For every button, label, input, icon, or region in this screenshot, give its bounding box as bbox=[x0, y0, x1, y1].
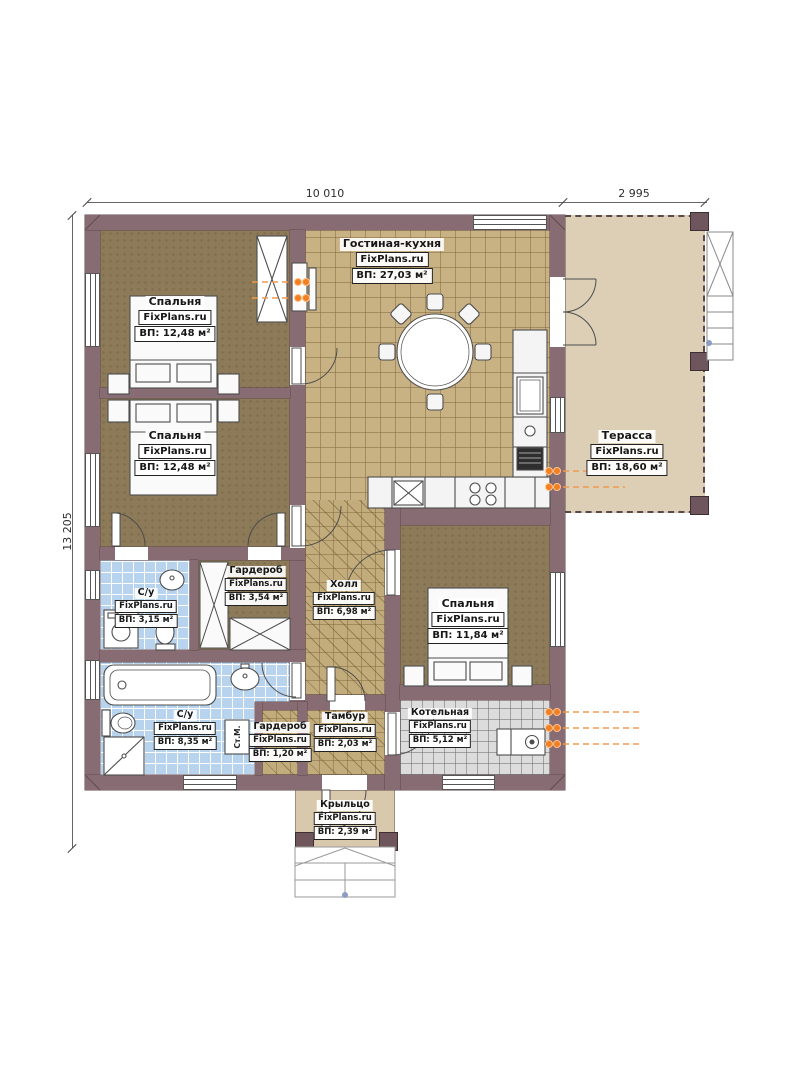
terrace-post bbox=[690, 496, 709, 515]
room-label-porch: Крыльцо FixPlans.ru ВП: 2,39 м² bbox=[314, 800, 377, 840]
window bbox=[473, 215, 547, 230]
door-opening bbox=[550, 277, 565, 347]
watermark: FixPlans.ru bbox=[314, 724, 376, 737]
room-area: ВП: 5,12 м² bbox=[409, 734, 472, 747]
porch-post bbox=[295, 832, 314, 851]
window bbox=[550, 397, 565, 433]
door-opening bbox=[290, 505, 305, 548]
terrace-post bbox=[690, 212, 709, 231]
room-name: Холл bbox=[327, 580, 361, 591]
wall bbox=[100, 650, 305, 662]
window bbox=[442, 775, 495, 790]
room-label-boiler: Котельная FixPlans.ru ВП: 5,12 м² bbox=[408, 708, 472, 748]
wall bbox=[190, 560, 198, 650]
watermark: FixPlans.ru bbox=[355, 252, 428, 268]
room-name: Гардероб bbox=[226, 566, 285, 577]
room-label-bath-small: С/у FixPlans.ru ВП: 3,15 м² bbox=[115, 588, 178, 628]
door-opening bbox=[385, 712, 400, 755]
porch-post bbox=[379, 832, 398, 851]
door-opening bbox=[115, 547, 148, 560]
room-label-bedroom2: Спальня FixPlans.ru ВП: 12,48 м² bbox=[134, 430, 215, 476]
room-area: ВП: 3,15 м² bbox=[115, 614, 178, 627]
window bbox=[85, 273, 100, 347]
window bbox=[183, 775, 237, 790]
watermark: FixPlans.ru bbox=[249, 734, 311, 747]
wall bbox=[100, 388, 290, 398]
room-name: Крыльцо bbox=[317, 800, 373, 811]
door-opening bbox=[290, 662, 305, 700]
room-label-terrace: Терасса FixPlans.ru ВП: 18,60 м² bbox=[586, 430, 667, 476]
room-label-bedroom3: Спальня FixPlans.ru ВП: 11,84 м² bbox=[427, 598, 508, 644]
room-label-bedroom1: Спальня FixPlans.ru ВП: 12,48 м² bbox=[134, 296, 215, 342]
room-area: ВП: 2,03 м² bbox=[314, 738, 377, 751]
watermark: FixPlans.ru bbox=[115, 600, 177, 613]
door-opening bbox=[290, 347, 305, 385]
room-area: ВП: 11,84 м² bbox=[427, 628, 508, 644]
room-area: ВП: 3,54 м² bbox=[225, 592, 288, 605]
watermark: FixPlans.ru bbox=[138, 444, 211, 460]
room-label-tambour: Тамбур FixPlans.ru ВП: 2,03 м² bbox=[314, 712, 377, 752]
watermark: FixPlans.ru bbox=[409, 720, 471, 733]
room-name: С/у bbox=[135, 588, 158, 599]
watermark: FixPlans.ru bbox=[314, 812, 376, 825]
terrace-post bbox=[690, 352, 709, 371]
room-name: Тамбур bbox=[322, 712, 368, 723]
room-name: Спальня bbox=[146, 296, 205, 309]
room-area: ВП: 1,20 м² bbox=[249, 748, 312, 761]
terrace-stairs-icon bbox=[706, 232, 733, 360]
room-area: ВП: 18,60 м² bbox=[586, 460, 667, 476]
wall bbox=[290, 230, 305, 702]
dimension-line-top bbox=[87, 202, 707, 203]
room-label-wardrobe-big: Гардероб FixPlans.ru ВП: 3,54 м² bbox=[225, 566, 288, 606]
room-area: ВП: 8,35 м² bbox=[154, 736, 217, 749]
room-label-wardrobe-small: Гардероб FixPlans.ru ВП: 1,20 м² bbox=[249, 722, 312, 762]
room-area: ВП: 27,03 м² bbox=[351, 268, 432, 284]
door-opening bbox=[322, 775, 367, 790]
room-area: ВП: 6,98 м² bbox=[313, 606, 376, 619]
dimension-side-total: 13 205 bbox=[61, 512, 74, 551]
door-opening bbox=[330, 695, 365, 710]
door-opening bbox=[248, 547, 281, 560]
room-area: ВП: 2,39 м² bbox=[314, 826, 377, 839]
room-name: С/у bbox=[174, 710, 197, 721]
room-name: Спальня bbox=[146, 430, 205, 443]
room-name: Гардероб bbox=[250, 722, 309, 733]
room-name: Котельная bbox=[408, 708, 472, 719]
watermark: FixPlans.ru bbox=[225, 578, 287, 591]
watermark: FixPlans.ru bbox=[154, 722, 216, 735]
room-area: ВП: 12,48 м² bbox=[134, 460, 215, 476]
watermark: FixPlans.ru bbox=[313, 592, 375, 605]
watermark: FixPlans.ru bbox=[590, 444, 663, 460]
room-name: Гостиная-кухня bbox=[340, 238, 444, 251]
room-label-hall: Холл FixPlans.ru ВП: 6,98 м² bbox=[313, 580, 376, 620]
room-name: Спальня bbox=[439, 598, 498, 611]
wall bbox=[385, 508, 550, 525]
window bbox=[85, 660, 100, 700]
floor-plan-canvas: 10 010 2 995 13 205 bbox=[0, 0, 792, 1080]
window bbox=[550, 572, 565, 647]
room-name: Терасса bbox=[599, 430, 656, 443]
dimension-top-terrace: 2 995 bbox=[618, 187, 650, 200]
window bbox=[85, 453, 100, 527]
dimension-top-main: 10 010 bbox=[306, 187, 345, 200]
door-opening bbox=[385, 550, 400, 595]
watermark: FixPlans.ru bbox=[138, 310, 211, 326]
room-label-bath-big: С/у FixPlans.ru ВП: 8,35 м² bbox=[154, 710, 217, 750]
room-label-living-kitchen: Гостиная-кухня FixPlans.ru ВП: 27,03 м² bbox=[340, 238, 444, 284]
watermark: FixPlans.ru bbox=[431, 612, 504, 628]
wall bbox=[400, 685, 550, 700]
porch-steps-icon bbox=[295, 847, 395, 898]
window bbox=[85, 570, 100, 600]
room-area: ВП: 12,48 м² bbox=[134, 326, 215, 342]
